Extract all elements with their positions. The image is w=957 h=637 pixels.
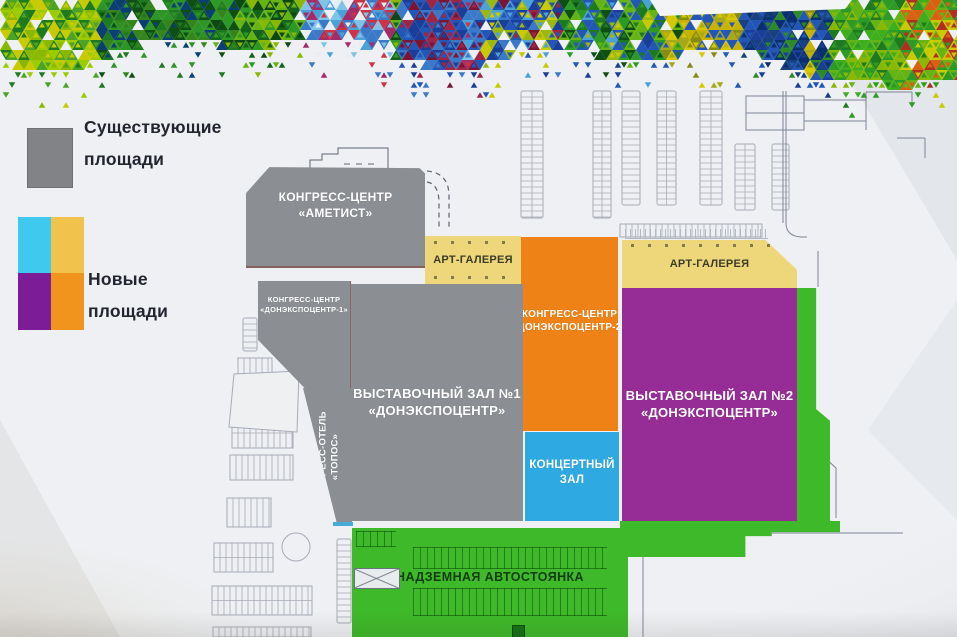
legend-new-line2: площади [88, 301, 168, 321]
ametist-label-line2: «АМЕТИСТ» [299, 206, 373, 222]
building-congress-center-donexpocentr-2: КОНГРЕСС-ЦЕНТР «ДОНЭКСПОЦЕНТР-2» [521, 237, 618, 431]
building-concert-hall: КОНЦЕРТНЫЙ ЗАЛ [525, 432, 619, 521]
parking-stalls [356, 531, 396, 547]
hall1-label-line1: ВЫСТАВОЧНЫЙ ЗАЛ №1 [353, 386, 521, 403]
art-gallery-dots [434, 276, 512, 279]
mosaic-banner [0, 0, 957, 130]
art-gallery-dots [631, 244, 788, 247]
legend-swatch-yellow [51, 217, 84, 273]
road-hatch-strip [625, 229, 768, 239]
legend-existing-swatch [27, 128, 73, 188]
legend-new-swatch [18, 217, 84, 330]
building-congress-center-ametist: КОНГРЕСС-ЦЕНТР «АМЕТИСТ» [246, 164, 425, 268]
legend-new-line1: Новые [88, 269, 148, 289]
don2-label-line1: КОНГРЕСС-ЦЕНТР [522, 308, 617, 321]
don1-label-line1: КОНГРЕСС-ЦЕНТР [268, 295, 340, 305]
don2-label-line2: «ДОНЭКСПОЦЕНТР-2» [512, 321, 628, 334]
topos-entrance-mark [333, 522, 353, 526]
legend-existing-line2: площади [84, 149, 164, 169]
building-exhibition-hall-2: ВЫСТАВОЧНЫЙ ЗАЛ №2 «ДОНЭКСПОЦЕНТР» [622, 288, 797, 521]
hall1-label-line2: «ДОНЭКСПОЦЕНТР» [369, 403, 506, 420]
art-gallery-left-label: АРТ-ГАЛЕРЕЯ [433, 253, 513, 267]
art-gallery-dots [434, 241, 512, 244]
legend-swatch-orange [51, 273, 84, 330]
ametist-label-line1: КОНГРЕСС-ЦЕНТР [279, 190, 393, 206]
parking-stalls [413, 588, 607, 616]
building-exhibition-hall-1: ВЫСТАВОЧНЫЙ ЗАЛ №1 «ДОНЭКСПОЦЕНТР» [351, 284, 523, 521]
concert-label-line2: ЗАЛ [560, 473, 584, 488]
concert-label-line1: КОНЦЕРТНЫЙ [529, 458, 614, 473]
legend-new-label: Новые площади [88, 264, 168, 327]
building-art-gallery-right: АРТ-ГАЛЕРЕЯ [622, 240, 797, 288]
don1-label-line2: «ДОНЭКСПОЦЕНТР-1» [260, 305, 348, 315]
art-gallery-right-label: АРТ-ГАЛЕРЕЯ [670, 257, 750, 271]
slide-site-plan: Существующие площади Новые площади КОНГР… [0, 0, 957, 637]
parking-stalls [413, 547, 607, 569]
building-elevated-parking: НАДЗЕМНАЯ АВТОСТОЯНКА [352, 528, 628, 637]
parking-ramp [354, 568, 400, 589]
legend-swatch-purple [18, 273, 51, 330]
parking-structure-mark [512, 625, 525, 637]
building-art-gallery-left: АРТ-ГАЛЕРЕЯ [425, 236, 521, 284]
hall2-label-line2: «ДОНЭКСПОЦЕНТР» [641, 405, 778, 422]
legend-swatch-cyan [18, 217, 51, 273]
parking-label: НАДЗЕМНАЯ АВТОСТОЯНКА [396, 569, 584, 585]
hall2-label-line1: ВЫСТАВОЧНЫЙ ЗАЛ №2 [626, 388, 794, 405]
